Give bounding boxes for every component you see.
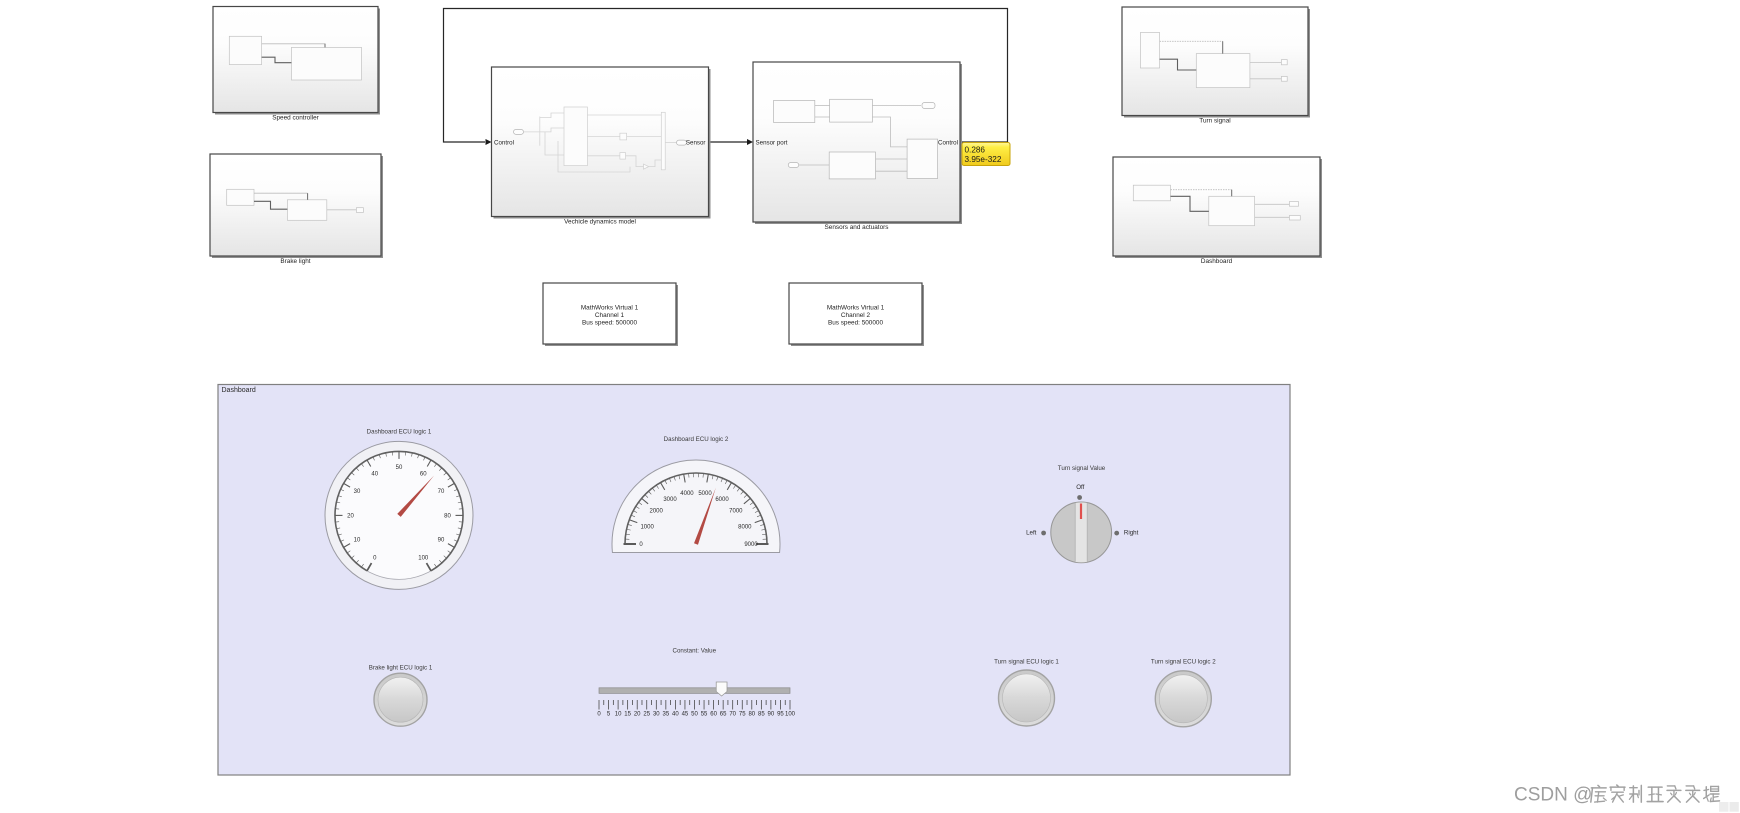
svg-text:Right: Right (1124, 530, 1139, 537)
svg-text:Turn signal ECU logic 2: Turn signal ECU logic 2 (1151, 659, 1216, 666)
svg-text:1000: 1000 (640, 524, 654, 530)
svg-text:9000: 9000 (744, 542, 758, 548)
svg-text:5000: 5000 (698, 491, 712, 497)
svg-text:Control: Control (938, 140, 958, 147)
svg-text:Control: Control (494, 140, 514, 147)
svg-text:Dashboard: Dashboard (1201, 258, 1233, 265)
svg-text:100: 100 (418, 555, 429, 561)
svg-text:75: 75 (739, 711, 746, 717)
svg-text:35: 35 (663, 711, 670, 717)
svg-text:Brake light ECU logic 1: Brake light ECU logic 1 (369, 665, 433, 672)
svg-text:15: 15 (624, 711, 631, 717)
svg-text:90: 90 (438, 538, 445, 544)
svg-text:90: 90 (768, 711, 775, 717)
svg-text:Bus speed: 500000: Bus speed: 500000 (828, 320, 884, 327)
svg-text:Off: Off (1076, 484, 1084, 491)
svg-text:MathWorks Virtual 1: MathWorks Virtual 1 (827, 305, 885, 312)
svg-text:70: 70 (729, 711, 736, 717)
svg-text:Turn signal ECU logic 1: Turn signal ECU logic 1 (994, 659, 1059, 666)
svg-text:70: 70 (438, 489, 445, 495)
svg-text:CSDN @: CSDN @ (1514, 785, 1592, 806)
svg-text:Constant: Value: Constant: Value (673, 648, 717, 655)
svg-text:65: 65 (720, 711, 727, 717)
svg-text:50: 50 (691, 711, 698, 717)
svg-text:60: 60 (420, 471, 427, 477)
svg-text:Dashboard ECU logic 2: Dashboard ECU logic 2 (664, 436, 729, 443)
svg-text:Vechicle dynamics model: Vechicle dynamics model (564, 218, 636, 225)
svg-text:40: 40 (672, 711, 679, 717)
svg-text:Speed controller: Speed controller (272, 114, 319, 121)
svg-text:50: 50 (396, 465, 403, 471)
svg-text:Turn signal Value: Turn signal Value (1058, 465, 1106, 472)
svg-text:10: 10 (354, 538, 361, 544)
svg-text:30: 30 (653, 711, 660, 717)
svg-text:8000: 8000 (738, 524, 752, 530)
svg-text:10: 10 (615, 711, 622, 717)
svg-text:7000: 7000 (729, 509, 743, 515)
svg-text:4000: 4000 (680, 491, 694, 497)
svg-text:85: 85 (758, 711, 765, 717)
svg-text:Channel 2: Channel 2 (841, 312, 871, 319)
svg-text:25: 25 (643, 711, 650, 717)
svg-text:Dashboard: Dashboard (222, 387, 256, 394)
svg-text:6000: 6000 (715, 497, 729, 503)
svg-text:95: 95 (777, 711, 784, 717)
svg-text:MathWorks Virtual 1: MathWorks Virtual 1 (581, 305, 639, 312)
svg-text:Channel 1: Channel 1 (595, 312, 625, 319)
svg-text:2000: 2000 (649, 509, 663, 515)
svg-text:100: 100 (785, 711, 796, 717)
svg-text:Dashboard ECU logic 1: Dashboard ECU logic 1 (367, 429, 432, 436)
svg-text:Brake light: Brake light (280, 258, 310, 265)
svg-text:Left: Left (1026, 530, 1037, 537)
svg-text:3000: 3000 (663, 497, 677, 503)
svg-text:Turn signal: Turn signal (1199, 117, 1230, 124)
svg-text:20: 20 (347, 513, 354, 519)
svg-text:20: 20 (634, 711, 641, 717)
svg-text:55: 55 (701, 711, 708, 717)
svg-text:3.95e-322: 3.95e-322 (965, 155, 1002, 164)
svg-text:60: 60 (710, 711, 717, 717)
svg-text:30: 30 (354, 489, 361, 495)
svg-text:Sensors and actuators: Sensors and actuators (825, 224, 889, 231)
svg-text:Sensor: Sensor (686, 140, 706, 147)
svg-text:0.286: 0.286 (965, 146, 986, 155)
svg-text:40: 40 (371, 471, 378, 477)
svg-text:Sensor port: Sensor port (756, 140, 788, 147)
svg-text:45: 45 (682, 711, 689, 717)
svg-text:Bus speed: 500000: Bus speed: 500000 (582, 320, 638, 327)
svg-text:80: 80 (444, 513, 451, 519)
svg-text:80: 80 (748, 711, 755, 717)
